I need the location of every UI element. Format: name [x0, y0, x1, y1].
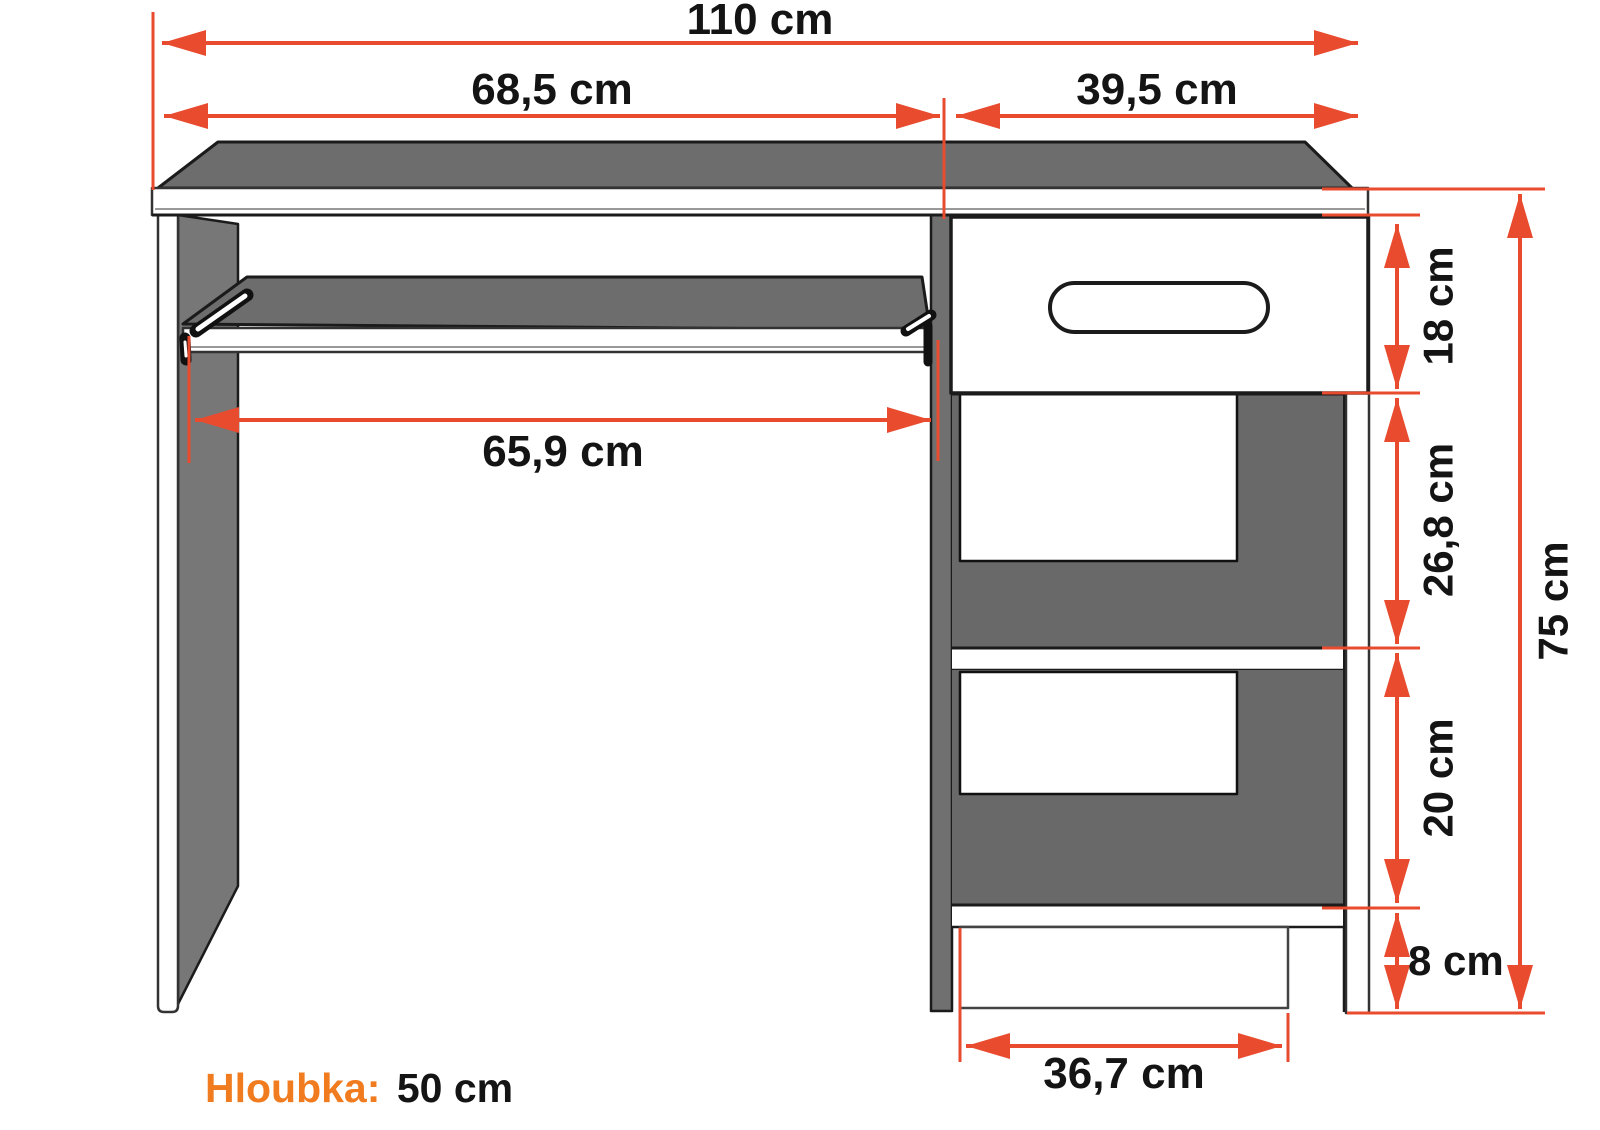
plinth: [960, 927, 1288, 1008]
diagram-canvas: 110 cm 68,5 cm 39,5 cm 65,9 cm 18 cm 26,…: [0, 0, 1600, 1130]
depth-caption-label: Hloubka:: [205, 1065, 380, 1111]
keyboard-tray: [183, 277, 931, 362]
desktop-top-face: [158, 142, 1352, 188]
left-panel-front-edge: [158, 215, 178, 1012]
desktop: [152, 142, 1368, 215]
depth-caption: Hloubka: 50 cm: [205, 1065, 513, 1111]
cabinet-divider: [931, 215, 952, 1011]
bottom-board: [952, 905, 1343, 927]
desktop-front-edge: [152, 188, 1368, 215]
drawer-handle-cutout: [1050, 283, 1268, 332]
open-shelf-upper: [952, 394, 1343, 648]
label-cabinet-width: 39,5 cm: [1076, 65, 1237, 114]
label-base-width: 36,7 cm: [1043, 1049, 1204, 1098]
label-tray-width: 65,9 cm: [482, 427, 643, 476]
desk-drawing: [152, 142, 1369, 1013]
shelf-upper-back-panel: [960, 394, 1237, 561]
tray-top-face: [183, 277, 930, 330]
label-desk-left-width: 68,5 cm: [471, 65, 632, 114]
shelf-board: [952, 648, 1343, 670]
bottom-board-face: [952, 905, 1343, 927]
label-total-width: 110 cm: [687, 0, 834, 44]
tray-front-edge: [183, 328, 930, 352]
label-lower-shelf-height: 20 cm: [1415, 718, 1462, 837]
label-upper-shelf-height: 26,8 cm: [1415, 443, 1462, 597]
depth-caption-value: 50 cm: [397, 1065, 513, 1111]
label-total-height: 75 cm: [1530, 541, 1577, 660]
label-plinth-height: 8 cm: [1408, 937, 1504, 984]
shelf-board-face: [952, 648, 1343, 670]
desk-dimension-diagram: 110 cm 68,5 cm 39,5 cm 65,9 cm 18 cm 26,…: [0, 0, 1600, 1130]
label-drawer-height: 18 cm: [1415, 246, 1462, 365]
open-shelf-lower: [952, 670, 1343, 905]
shelf-lower-back-panel: [960, 672, 1237, 794]
drawer: [951, 217, 1368, 393]
